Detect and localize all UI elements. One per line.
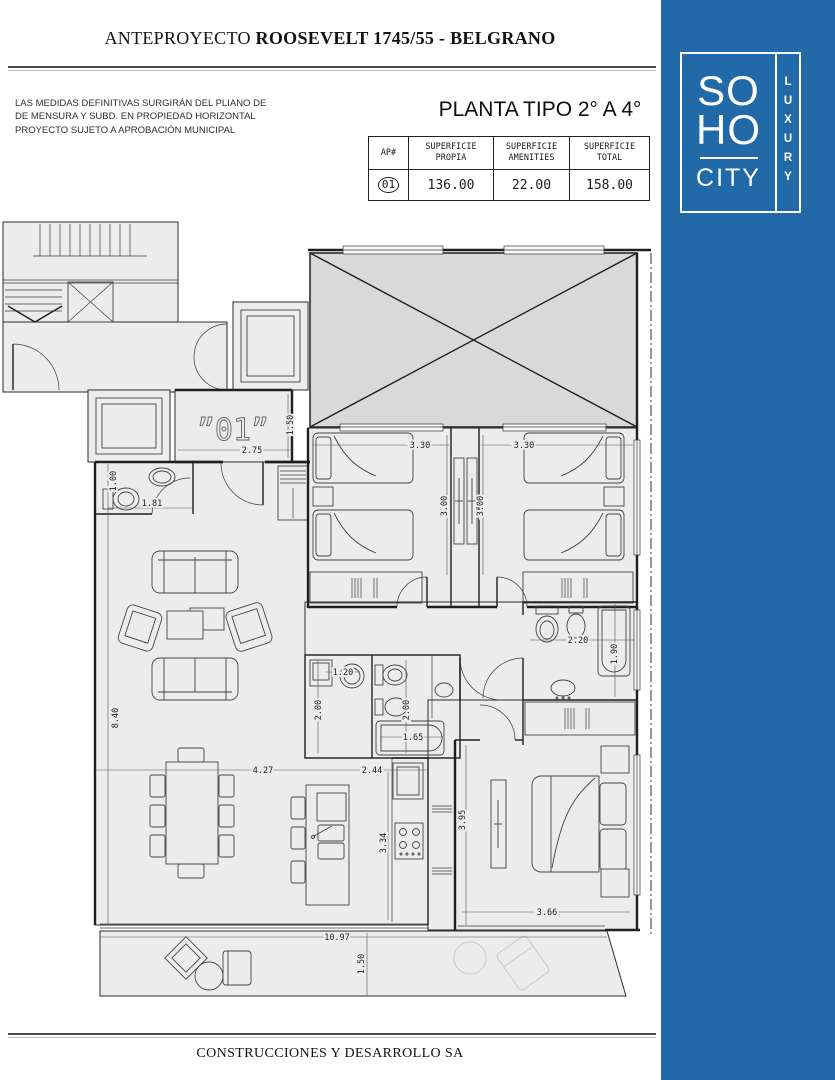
sheet-title-bold: ROOSEVELT 1745/55 - BELGRANO	[256, 28, 556, 48]
brand-sidebar: SO HO CITY LUXURY	[661, 0, 835, 1080]
single-bed-icon	[524, 510, 624, 560]
single-bed-icon	[313, 510, 413, 560]
dim-living-depth: 8.40	[111, 708, 121, 728]
col-header-ap: AP#	[369, 137, 409, 170]
dim-bedroom1-width: 3.30	[410, 441, 430, 451]
dim-bath-depth: 2.00	[402, 700, 412, 720]
areas-table: AP# SUPERFICIE PROPIA SUPERFICIE AMENITI…	[368, 136, 650, 201]
single-bed-icon	[524, 433, 624, 483]
coffee-table-icon	[167, 611, 203, 639]
dim-kitchen-depth: 3.34	[379, 833, 389, 853]
dim-bedroom1-depth: 3.00	[440, 496, 450, 516]
cell-superficie-propia: 136.00	[409, 170, 494, 201]
nightstand-icon	[313, 487, 333, 506]
logo-line-city: CITY	[696, 164, 761, 193]
dim-balcony-depth: 1.50	[357, 954, 367, 974]
disclaimer-line-3: PROYECTO SUJETO A APROBACIÓN MUNICIPAL	[15, 124, 266, 137]
dim-ensuite-width: 2.20	[568, 636, 588, 646]
sheet-title: ANTEPROYECTO ROOSEVELT 1745/55 - BELGRAN…	[0, 28, 660, 49]
col-header-superficie-propia: SUPERFICIE PROPIA	[409, 137, 494, 170]
sheet-title-regular: ANTEPROYECTO	[104, 28, 255, 48]
unit-number-badge: 01	[378, 177, 399, 193]
dim-master-width: 3.66	[537, 908, 557, 918]
logo-line-ho: HO	[696, 111, 761, 150]
dim-balcony-width: 10.97	[324, 933, 350, 943]
sofa-icon	[152, 551, 238, 593]
disclaimer-line-2: DE MENSURA Y SUBD. EN PROPIEDAD HORIZONT…	[15, 110, 266, 123]
dim-kitchen-width: 2.44	[362, 766, 382, 776]
areas-table-row: 01 136.00 22.00 158.00	[369, 170, 650, 201]
dim-bedroom2-depth: 3.00	[476, 496, 486, 516]
disclaimer-note: LAS MEDIDAS DEFINITIVAS SURGIRÁN DEL PLI…	[15, 97, 266, 137]
drawing-sheet: ANTEPROYECTO ROOSEVELT 1745/55 - BELGRAN…	[0, 0, 835, 1080]
col-header-superficie-amenities: SUPERFICIE AMENITIES	[494, 137, 570, 170]
dim-tub-width: 1.65	[403, 733, 423, 743]
dim-entry-height: 1.50	[286, 415, 296, 435]
sofa-icon	[152, 658, 238, 700]
dim-bedroom2-width: 3.30	[514, 441, 534, 451]
unit-number-label: ”01”	[197, 413, 269, 448]
plan-title: PLANTA TIPO 2° A 4°	[420, 98, 660, 122]
dim-wc-width: 1.81	[142, 499, 162, 509]
nightstand-icon	[604, 487, 624, 506]
dim-laundry-depth: 2.00	[314, 700, 324, 720]
nightstand-icon	[601, 746, 629, 773]
footer-divider	[8, 1033, 656, 1038]
dim-ensuite-tub-depth: 1.90	[610, 644, 620, 664]
header-divider	[8, 66, 656, 71]
dim-wc-depth: 1.00	[109, 471, 119, 491]
disclaimer-line-1: LAS MEDIDAS DEFINITIVAS SURGIRÁN DEL PLI…	[15, 97, 266, 110]
dim-laundry-width: 1.20	[333, 668, 353, 678]
floor-plan-drawing: ”01”	[0, 215, 660, 1015]
cell-ap: 01	[369, 170, 409, 201]
col-header-superficie-total: SUPERFICIE TOTAL	[570, 137, 650, 170]
dim-dining-width: 4.27	[253, 766, 273, 776]
dining-table-icon	[166, 762, 218, 864]
single-bed-icon	[313, 433, 413, 483]
void-shaft	[310, 253, 637, 427]
dim-entry-width: 2.75	[242, 446, 262, 456]
logo-luxury-text: LUXURY	[782, 76, 794, 190]
areas-table-header-row: AP# SUPERFICIE PROPIA SUPERFICIE AMENITI…	[369, 137, 650, 170]
cell-superficie-total: 158.00	[570, 170, 650, 201]
company-name: CONSTRUCCIONES Y DESARROLLO SA	[0, 1046, 660, 1062]
soho-city-logo: SO HO CITY LUXURY	[680, 52, 801, 213]
cell-superficie-amenities: 22.00	[494, 170, 570, 201]
luxury-logo-box: LUXURY	[777, 52, 801, 213]
dim-master-depth: 3.95	[458, 810, 468, 830]
soho-city-logo-box: SO HO CITY	[680, 52, 777, 213]
logo-divider	[700, 157, 758, 159]
nightstand-icon	[601, 869, 629, 897]
